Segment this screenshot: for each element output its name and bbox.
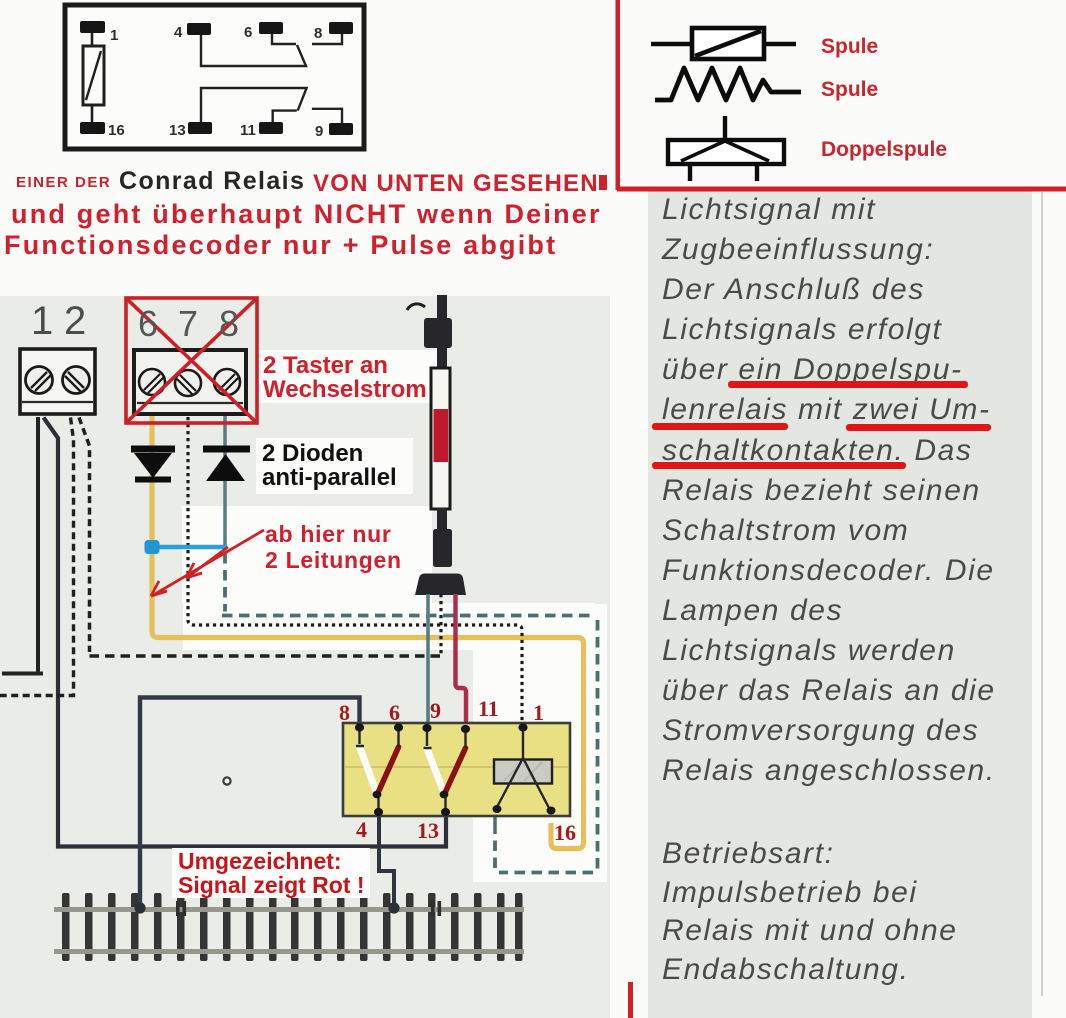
svg-text:11: 11 xyxy=(240,122,256,139)
svg-text:6: 6 xyxy=(244,24,252,41)
svg-text:16: 16 xyxy=(108,122,125,139)
svg-text:Spule: Spule xyxy=(821,78,878,101)
svg-text:4: 4 xyxy=(174,24,183,41)
svg-text:Spule: Spule xyxy=(821,35,878,58)
svg-text:9: 9 xyxy=(315,123,323,140)
svg-text:1: 1 xyxy=(110,27,118,44)
svg-text:13: 13 xyxy=(169,122,186,139)
svg-text:Doppelspule: Doppelspule xyxy=(821,138,947,161)
svg-text:8: 8 xyxy=(314,25,322,42)
